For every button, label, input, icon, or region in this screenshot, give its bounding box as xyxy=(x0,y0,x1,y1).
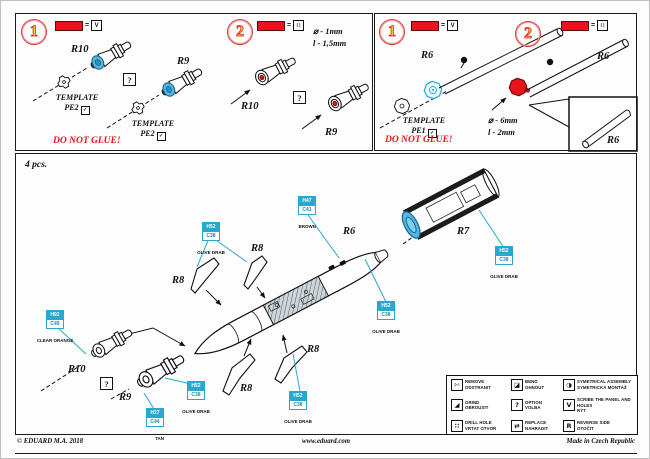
part-label-r7: R7 xyxy=(457,226,469,237)
red-swatch xyxy=(411,21,439,31)
footer-rule xyxy=(15,453,637,454)
scribe-icon: V xyxy=(447,20,458,31)
step-1-badge: 1 xyxy=(21,19,47,45)
part-label-r9: R9 xyxy=(325,127,337,138)
bend-icon: ◪ xyxy=(511,379,523,391)
paint-callout-olive-drab: H52 C38 OLIVE DRAB xyxy=(202,222,220,259)
scribe-icon: V xyxy=(91,20,102,31)
paint-callout-olive-drab: H52 C38 OLIVE DRAB xyxy=(377,301,395,338)
part-label-r6: R6 xyxy=(343,226,355,237)
part-label-r10: R10 xyxy=(68,364,86,375)
bend-icon: ✓ xyxy=(157,132,166,141)
legend-item: ◢ GRINDOBROUSIT xyxy=(451,397,511,414)
paint-key-scribe: = V xyxy=(411,20,458,31)
step-1-badge: 1 xyxy=(379,19,405,45)
part-label-r8: R8 xyxy=(251,243,263,254)
bend-icon: ✓ xyxy=(81,106,90,115)
red-swatch xyxy=(55,21,83,31)
option-box: ? xyxy=(293,91,306,104)
option-box: ? xyxy=(123,73,136,86)
step-number: 2 xyxy=(524,25,532,43)
equals-sign: = xyxy=(287,22,291,29)
step-number: 2 xyxy=(236,23,244,41)
step-2-badge: 2 xyxy=(227,19,253,45)
symmetrical-assembly-icon: ◑ xyxy=(563,379,575,391)
remove-icon: ✄ xyxy=(451,379,463,391)
drill-dimensions: ⌀ - 6mm l - 2mm xyxy=(488,115,518,139)
scribe-icon: V xyxy=(563,399,575,411)
paint-key-drill: = ∷ xyxy=(561,20,608,31)
red-swatch xyxy=(257,21,285,31)
drill-hole-icon: ∷ xyxy=(451,420,463,432)
option-box: ? xyxy=(100,377,113,390)
footer-made-in: Made in Czech Republic xyxy=(566,438,635,445)
part-label-r9: R9 xyxy=(177,56,189,67)
legend-item: V SCRIBE THE PANEL AND HOLESRÝT xyxy=(563,397,637,414)
paint-callout-olive-drab: H52 C38 OLIVE DRAB xyxy=(187,381,205,418)
legend-item: ◪ BENDOHNOUT xyxy=(511,379,563,391)
quantity-note: 4 pcs. xyxy=(25,160,47,170)
drill-hole-icon: ∷ xyxy=(293,20,304,31)
paint-callout-olive-drab: H52 C38 OLIVE DRAB xyxy=(289,391,307,428)
part-label-r6: R6 xyxy=(421,50,433,61)
paint-callout-clear-orange: H92 C49 CLEAR ORANGE xyxy=(46,310,64,347)
equals-sign: = xyxy=(591,22,595,29)
legend-item: R REVERSE SIDEOTOČIT xyxy=(563,420,637,432)
instruction-sheet: .dash{stroke:#111;stroke-width:1;stroke-… xyxy=(0,0,650,459)
paint-key-drill: = ∷ xyxy=(257,20,304,31)
equals-sign: = xyxy=(85,22,89,29)
paint-key-scribe: = V xyxy=(55,20,102,31)
footer-website: www.eduard.com xyxy=(1,438,650,445)
reverse-side-icon: R xyxy=(563,420,575,432)
symbols-legend: ✄ REMOVEODSTRANIT ◪ BENDOHNOUT ◑ SYMETRI… xyxy=(446,375,638,435)
grind-icon: ◢ xyxy=(451,399,463,411)
replace-icon: ⇄ xyxy=(511,420,523,432)
part-label-r8: R8 xyxy=(240,383,252,394)
step-number: 1 xyxy=(30,23,38,41)
part-label-r6: R6 xyxy=(597,51,609,62)
drill-hole-icon: ∷ xyxy=(597,20,608,31)
step-2-badge: 2 xyxy=(515,21,541,47)
part-label-r6: R6 xyxy=(607,135,619,146)
template-note: TEMPLATE PE2✓ xyxy=(41,93,113,115)
red-swatch xyxy=(561,21,589,31)
part-label-r8: R8 xyxy=(307,344,319,355)
option-icon: ? xyxy=(511,399,523,411)
legend-item: ⇄ REPLACENAHRADIT xyxy=(511,420,563,432)
part-label-r9: R9 xyxy=(119,392,131,403)
paint-callout-brown: H47 C41 BROWN xyxy=(298,196,316,233)
step-number: 1 xyxy=(388,23,396,41)
legend-item: ◑ SYMETRICAL ASSEMBLYSYMETRICKÁ MONTÁŽ xyxy=(563,379,637,391)
equals-sign: = xyxy=(441,22,445,29)
template-note: TEMPLATE PE2✓ xyxy=(117,119,189,141)
part-label-r10: R10 xyxy=(71,44,89,55)
do-not-glue-warning: DO NOT GLUE! xyxy=(385,135,453,145)
legend-item: ✄ REMOVEODSTRANIT xyxy=(451,379,511,391)
drill-dimensions: ⌀ - 1mm l - 1,5mm xyxy=(313,26,346,50)
paint-callout-olive-drab: H52 C38 OLIVE DRAB xyxy=(495,246,513,283)
part-label-r10: R10 xyxy=(241,101,259,112)
do-not-glue-warning: DO NOT GLUE! xyxy=(53,136,121,146)
legend-item: ∷ DRILL HOLEVRTAT OTVOR xyxy=(451,420,511,432)
part-label-r8: R8 xyxy=(172,275,184,286)
legend-item: ? OPTIONVOLBA xyxy=(511,397,563,414)
